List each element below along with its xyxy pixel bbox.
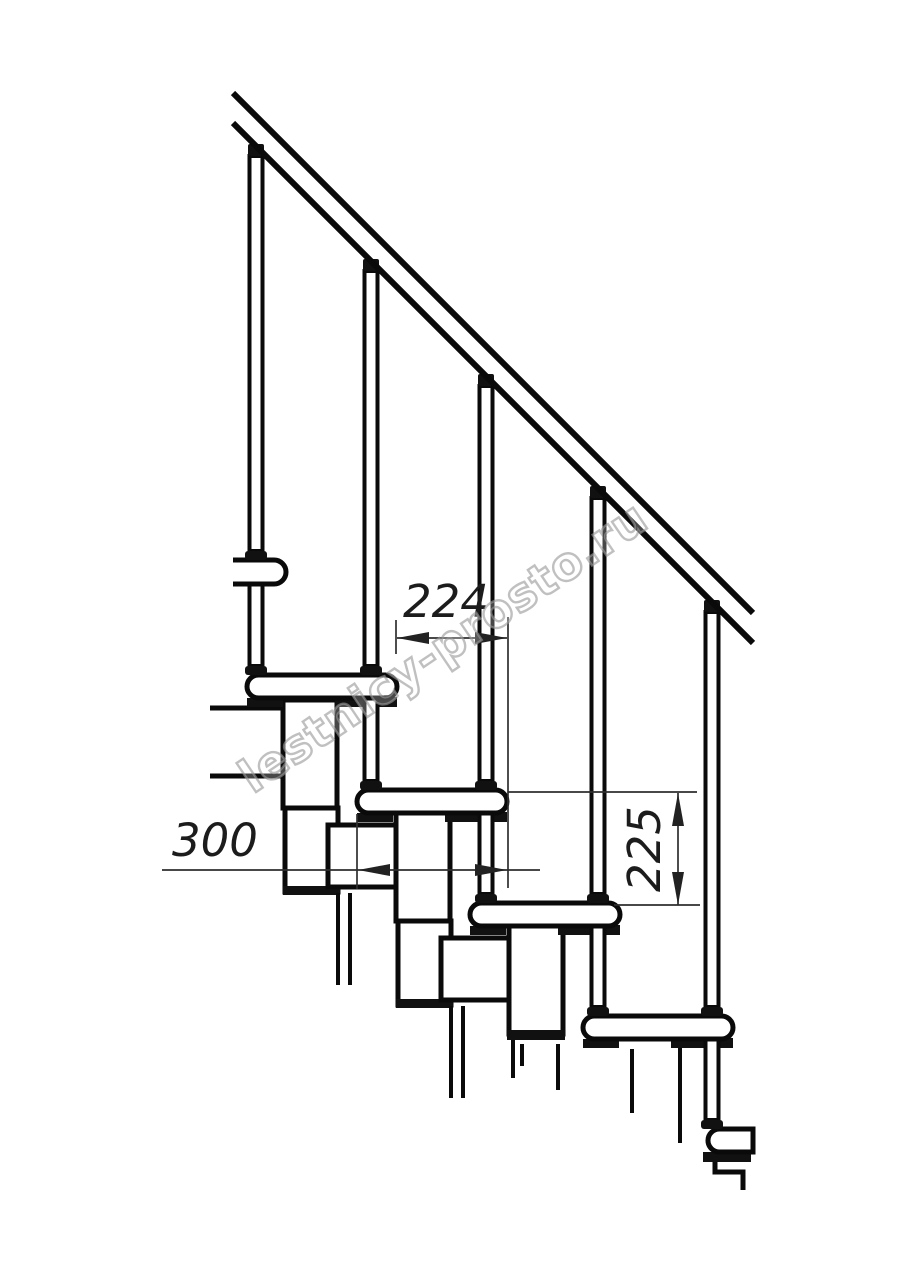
dim-arrow-down: [672, 872, 684, 905]
baluster-5-lower: [706, 1039, 719, 1120]
post-flange: [245, 666, 267, 675]
tread-3: [357, 790, 507, 813]
tread-6: [708, 1129, 753, 1152]
post-flange: [587, 1007, 609, 1016]
post-flange: [701, 1120, 723, 1129]
support-column: [509, 926, 563, 1034]
baluster-1-lower: [250, 584, 263, 666]
dimension-rise-label: 225: [618, 806, 671, 892]
module-sleeve-box: [441, 938, 518, 1000]
post-flange: [587, 894, 609, 903]
post-flange: [701, 1007, 723, 1016]
cut-step-line: [715, 1162, 743, 1190]
support-column-foot: [507, 1030, 565, 1040]
tread-4: [470, 903, 620, 926]
post-flange: [475, 781, 497, 790]
tread-1-end-view: [233, 560, 286, 584]
baluster-3-lower: [480, 813, 493, 894]
post-flange: [245, 551, 267, 560]
baluster-2-upper: [365, 271, 378, 666]
dimension-depth-label: 300: [172, 814, 258, 867]
staircase-drawing: 224 300 225 lestnicy-prosto.ru: [0, 0, 914, 1280]
module-sleeve-box: [328, 825, 405, 887]
tread-5: [583, 1016, 733, 1039]
post-flange: [360, 781, 382, 790]
baluster-1-upper: [250, 156, 263, 551]
dim-arrow-up: [672, 793, 684, 826]
support-column: [396, 813, 450, 921]
drawing-canvas: 224 300 225 lestnicy-prosto.ru: [0, 0, 914, 1280]
baluster-4-lower: [592, 926, 605, 1007]
baluster-5-upper: [706, 612, 719, 1007]
post-flange: [475, 894, 497, 903]
